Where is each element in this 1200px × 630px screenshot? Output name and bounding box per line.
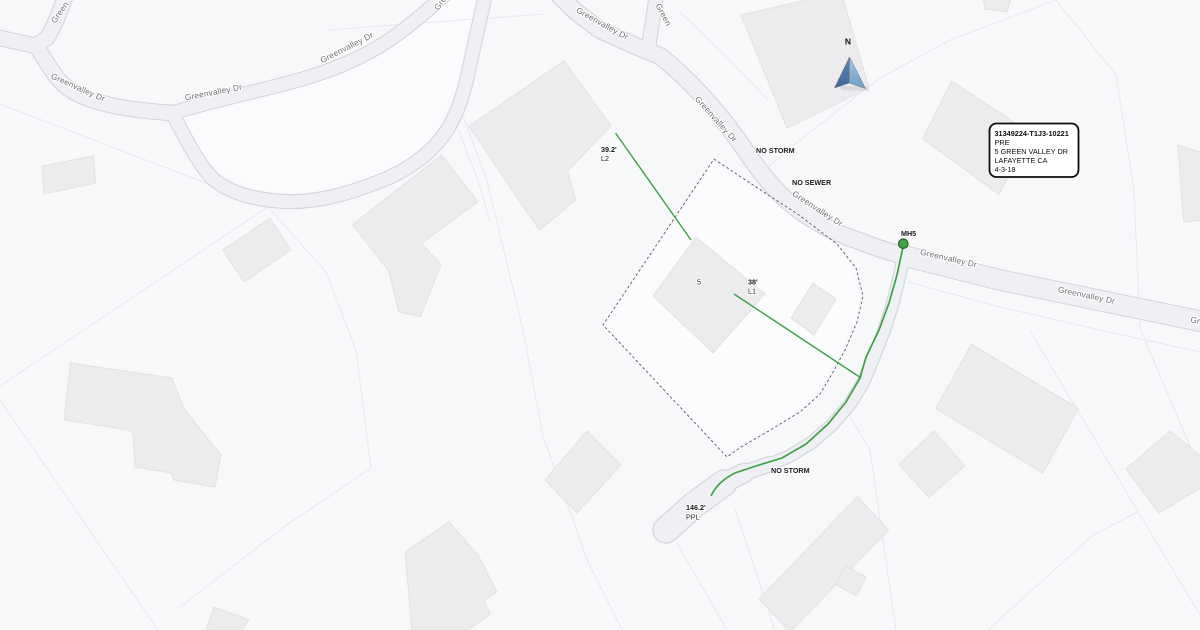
svg-text:39.2': 39.2' xyxy=(601,145,617,154)
svg-text:38': 38' xyxy=(748,278,758,287)
svg-text:PPL: PPL xyxy=(686,513,700,522)
svg-text:5 GREEN VALLEY DR: 5 GREEN VALLEY DR xyxy=(995,147,1069,156)
svg-text:L2: L2 xyxy=(601,154,609,163)
svg-text:NO SEWER: NO SEWER xyxy=(792,178,832,187)
svg-text:4-3-18: 4-3-18 xyxy=(995,165,1016,174)
svg-text:NO STORM: NO STORM xyxy=(771,466,810,475)
svg-text:PRE: PRE xyxy=(995,138,1010,147)
svg-text:5: 5 xyxy=(697,278,701,287)
svg-text:N: N xyxy=(845,37,851,47)
svg-text:LAFAYETTE CA: LAFAYETTE CA xyxy=(995,156,1048,165)
svg-text:MH5: MH5 xyxy=(901,229,916,238)
svg-text:NO STORM: NO STORM xyxy=(756,146,795,155)
svg-text:31349224-T1J3-10221: 31349224-T1J3-10221 xyxy=(995,129,1069,138)
svg-text:L1: L1 xyxy=(748,287,756,296)
svg-text:146.2': 146.2' xyxy=(686,503,706,512)
